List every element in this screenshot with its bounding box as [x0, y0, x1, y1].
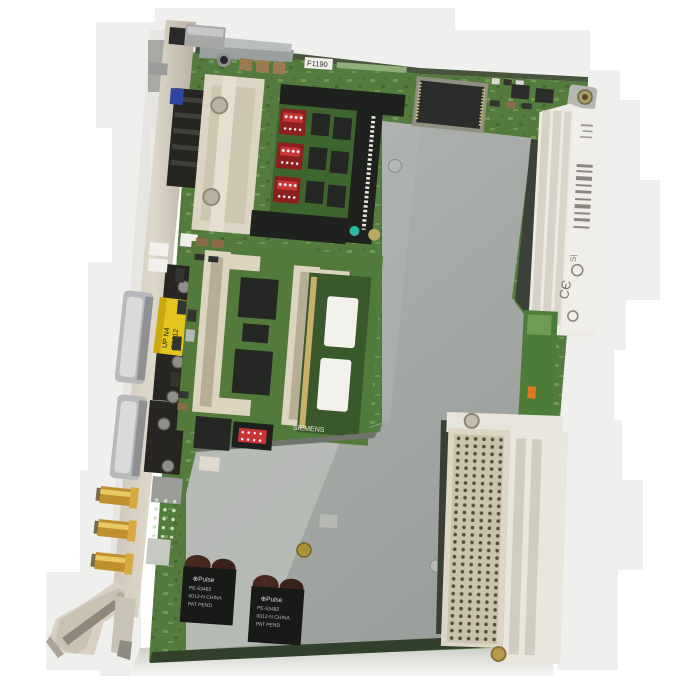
svg-text:F1190: F1190: [307, 59, 328, 69]
svg-text:S|: S|: [569, 254, 578, 262]
